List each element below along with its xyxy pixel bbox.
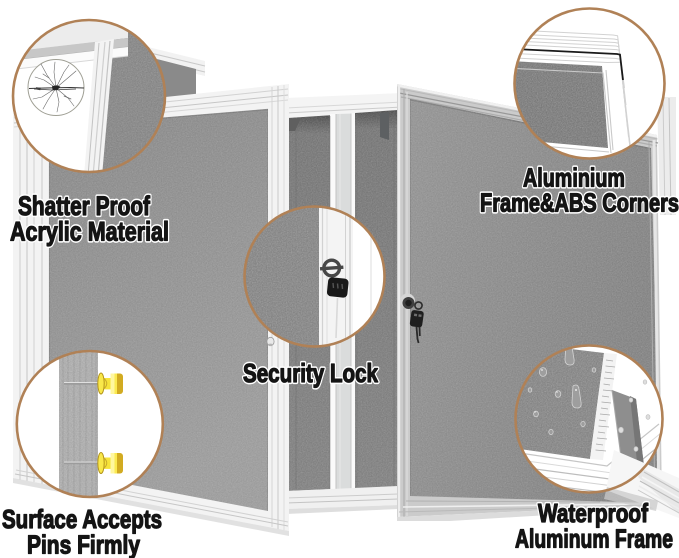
svg-text:Aluminum Frame: Aluminum Frame — [515, 524, 673, 554]
svg-text:Frame&ABS Corners: Frame&ABS Corners — [480, 188, 679, 218]
svg-text:Pins Firmly: Pins Firmly — [27, 530, 140, 558]
svg-text:Acrylic Material: Acrylic Material — [10, 217, 169, 247]
svg-text:Security Lock: Security Lock — [243, 358, 378, 388]
